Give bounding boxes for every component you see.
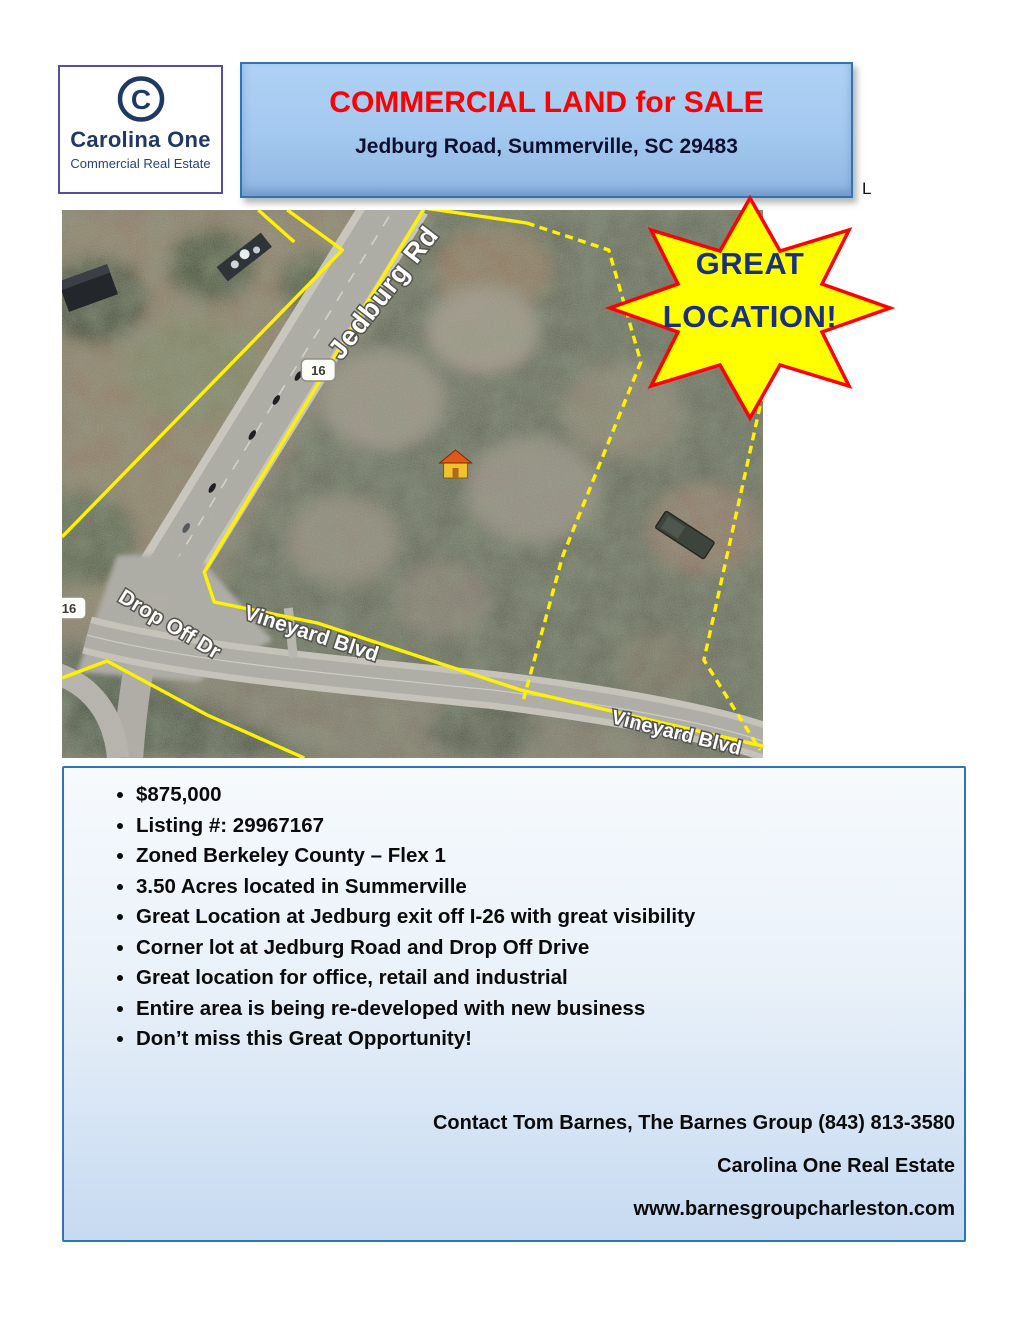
carolina-one-logo: C Carolina One Commercial Real Estate xyxy=(58,65,223,194)
bullet-item: Don’t miss this Great Opportunity! xyxy=(136,1024,964,1055)
header-banner: COMMERCIAL LAND for SALE Jedburg Road, S… xyxy=(240,62,853,198)
svg-text:C: C xyxy=(130,84,150,115)
flyer-page: { "brand": { "name": "Carolina One", "ta… xyxy=(0,0,1024,1325)
bullet-item: Corner lot at Jedburg Road and Drop Off … xyxy=(136,933,964,964)
flyer-address: Jedburg Road, Summerville, SC 29483 xyxy=(242,135,851,159)
contact-line-website: www.barnesgroupcharleston.com xyxy=(433,1188,955,1231)
great-location-badge: GREAT LOCATION! xyxy=(600,190,900,440)
carolina-one-c-icon: C xyxy=(115,74,167,124)
route-16-shield-lower: 16 xyxy=(62,597,86,619)
contact-line-company: Carolina One Real Estate xyxy=(433,1145,955,1188)
svg-text:16: 16 xyxy=(311,363,325,378)
bullet-item: Zoned Berkeley County – Flex 1 xyxy=(136,841,964,872)
route-16-shield-upper: 16 xyxy=(301,359,335,381)
badge-line-2: LOCATION! xyxy=(663,299,837,334)
badge-line-1: GREAT xyxy=(696,246,805,281)
bullet-item: Great location for office, retail and in… xyxy=(136,963,964,994)
bullet-item: Entire area is being re-developed with n… xyxy=(136,994,964,1025)
flyer-title: COMMERCIAL LAND for SALE xyxy=(242,86,851,120)
brand-name: Carolina One xyxy=(70,127,211,153)
bullet-item: 3.50 Acres located in Summerville xyxy=(136,872,964,903)
bullet-list: $875,000Listing #: 29967167Zoned Berkele… xyxy=(64,780,964,1055)
contact-line-agent: Contact Tom Barnes, The Barnes Group (84… xyxy=(433,1102,955,1145)
bullet-item: Great Location at Jedburg exit off I-26 … xyxy=(136,902,964,933)
bullet-item: $875,000 xyxy=(136,780,964,811)
brand-tagline: Commercial Real Estate xyxy=(70,156,210,171)
bullet-item: Listing #: 29967167 xyxy=(136,811,964,842)
svg-text:16: 16 xyxy=(62,601,76,616)
details-panel: $875,000Listing #: 29967167Zoned Berkele… xyxy=(62,766,966,1242)
contact-block: Contact Tom Barnes, The Barnes Group (84… xyxy=(433,1102,955,1231)
